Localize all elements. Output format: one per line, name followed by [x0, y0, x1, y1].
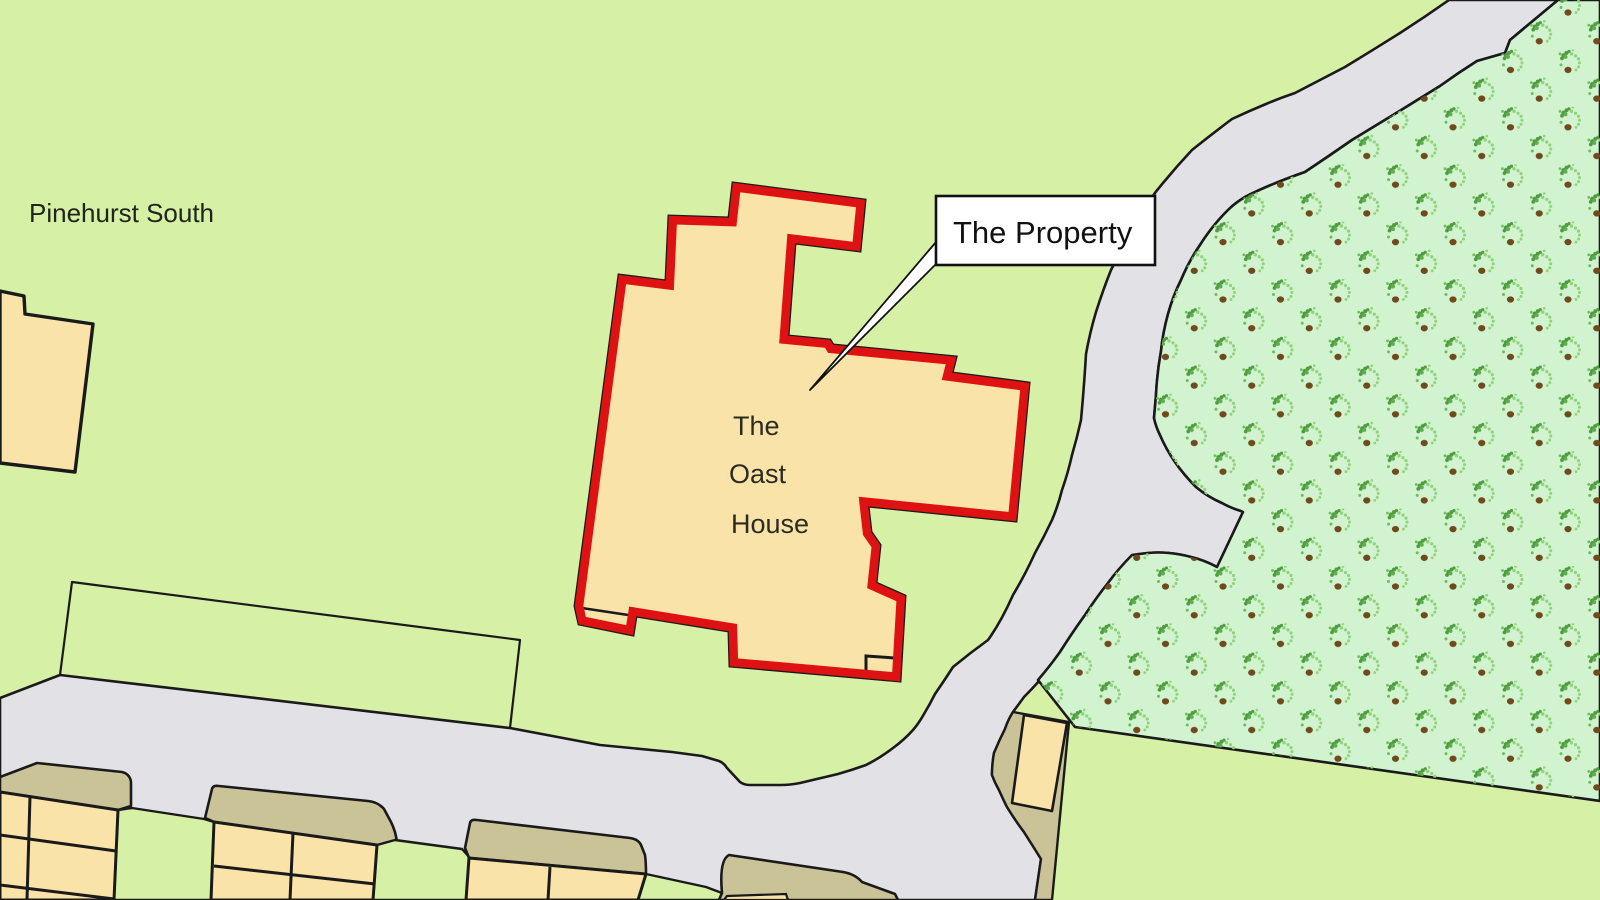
svg-text:Pinehurst South: Pinehurst South	[29, 198, 214, 228]
svg-text:The: The	[733, 411, 780, 441]
svg-text:House: House	[731, 509, 809, 539]
svg-text:Oast: Oast	[729, 459, 787, 489]
svg-text:The Property: The Property	[953, 215, 1133, 250]
